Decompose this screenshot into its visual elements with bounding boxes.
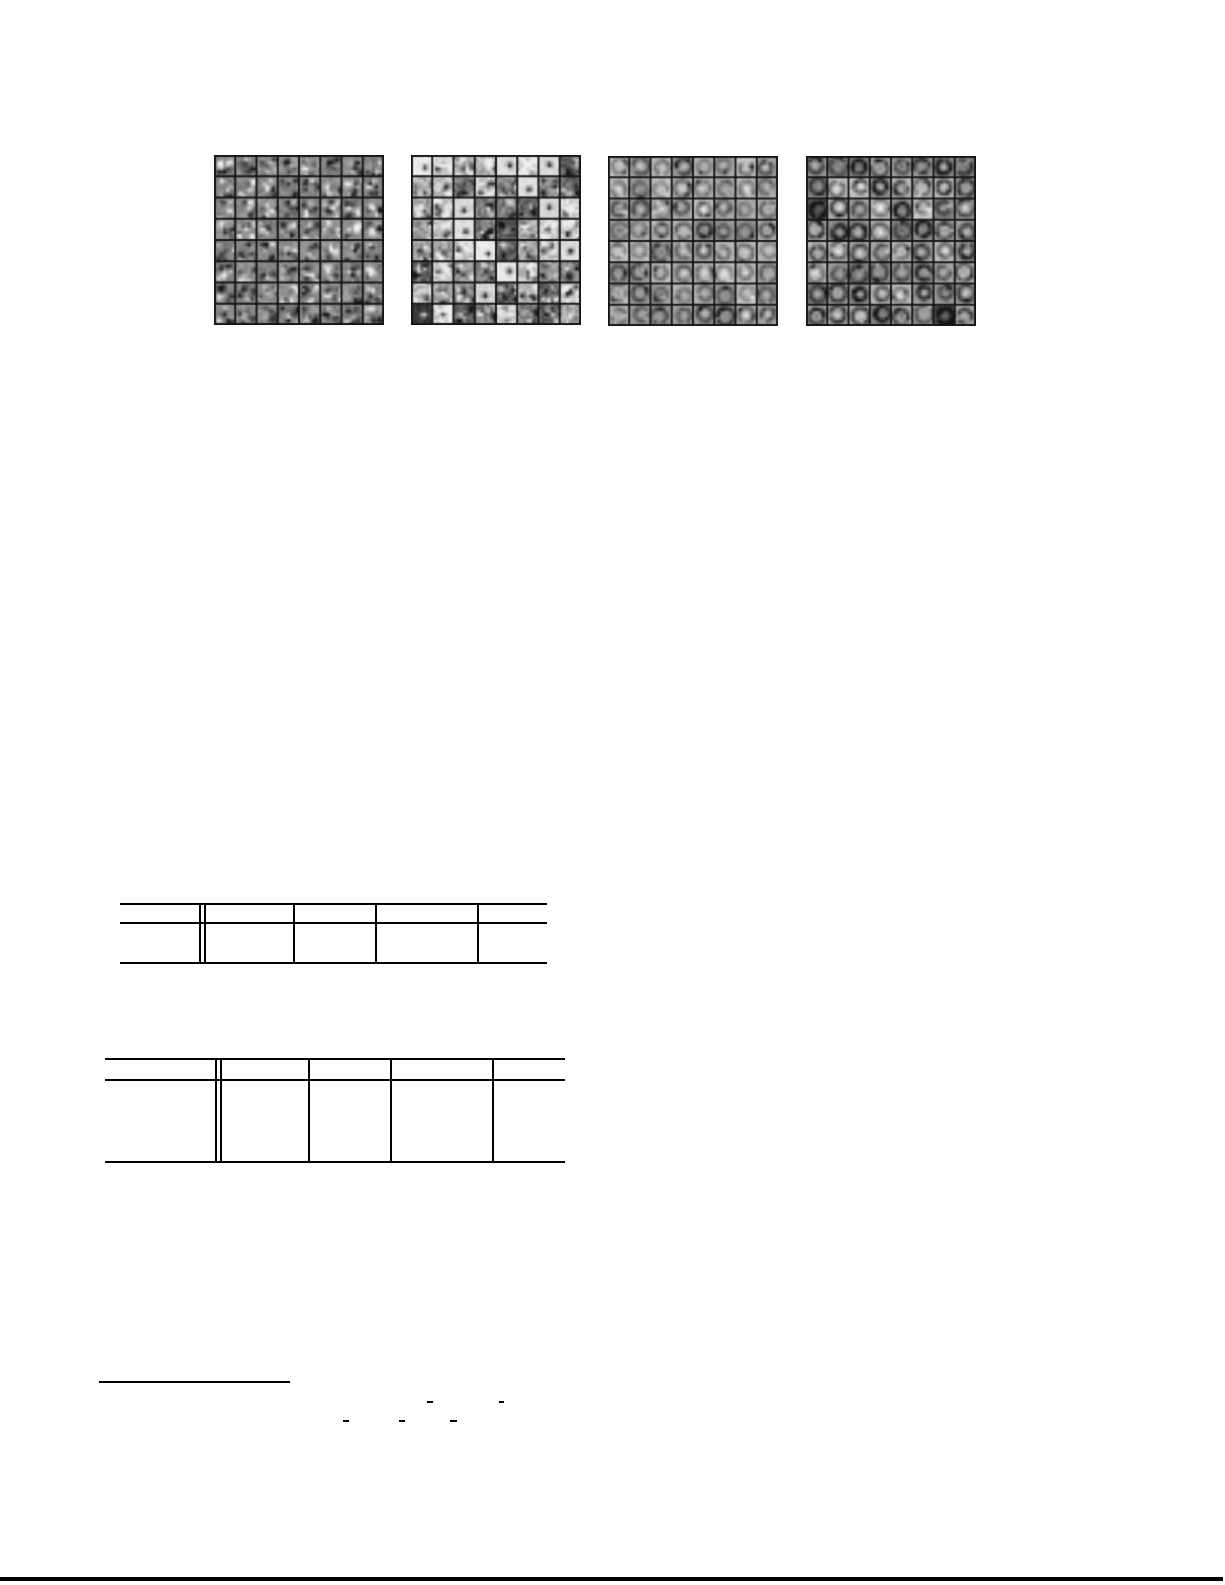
filter-grid-3 [608,156,778,326]
filter-grid-2 [411,155,581,325]
table-1-double-rule-left [199,903,201,964]
math-dash-4 [399,1420,405,1422]
footnote-rule [99,1381,290,1383]
table-2-col-rule-2 [308,1058,310,1163]
math-dash-1 [427,1401,433,1403]
filter-grid-1 [214,155,384,325]
table-1-col-rule-3 [375,903,377,964]
math-dash-5 [450,1420,457,1422]
math-dash-3 [343,1420,349,1422]
table-1-header-rule [120,922,547,924]
table-2 [105,1058,565,1163]
page-bottom-rule [0,1577,1223,1581]
table-1 [120,903,547,964]
math-dash-2 [499,1401,504,1403]
table-2-double-rule-left [215,1058,217,1163]
table-1-double-rule-right [204,903,206,964]
table-2-double-rule-right [220,1058,222,1163]
paper-page [0,0,1225,1585]
table-1-top-rule [120,903,547,905]
filter-grid-4 [806,156,976,326]
table-1-col-rule-2 [293,903,295,964]
table-2-top-rule [105,1058,565,1060]
table-2-col-rule-3 [390,1058,392,1163]
table-2-col-rule-4 [492,1058,494,1163]
table-1-col-rule-4 [477,903,479,964]
table-2-header-rule [105,1079,565,1081]
table-1-bottom-rule [120,962,547,964]
table-2-bottom-rule [105,1161,565,1163]
